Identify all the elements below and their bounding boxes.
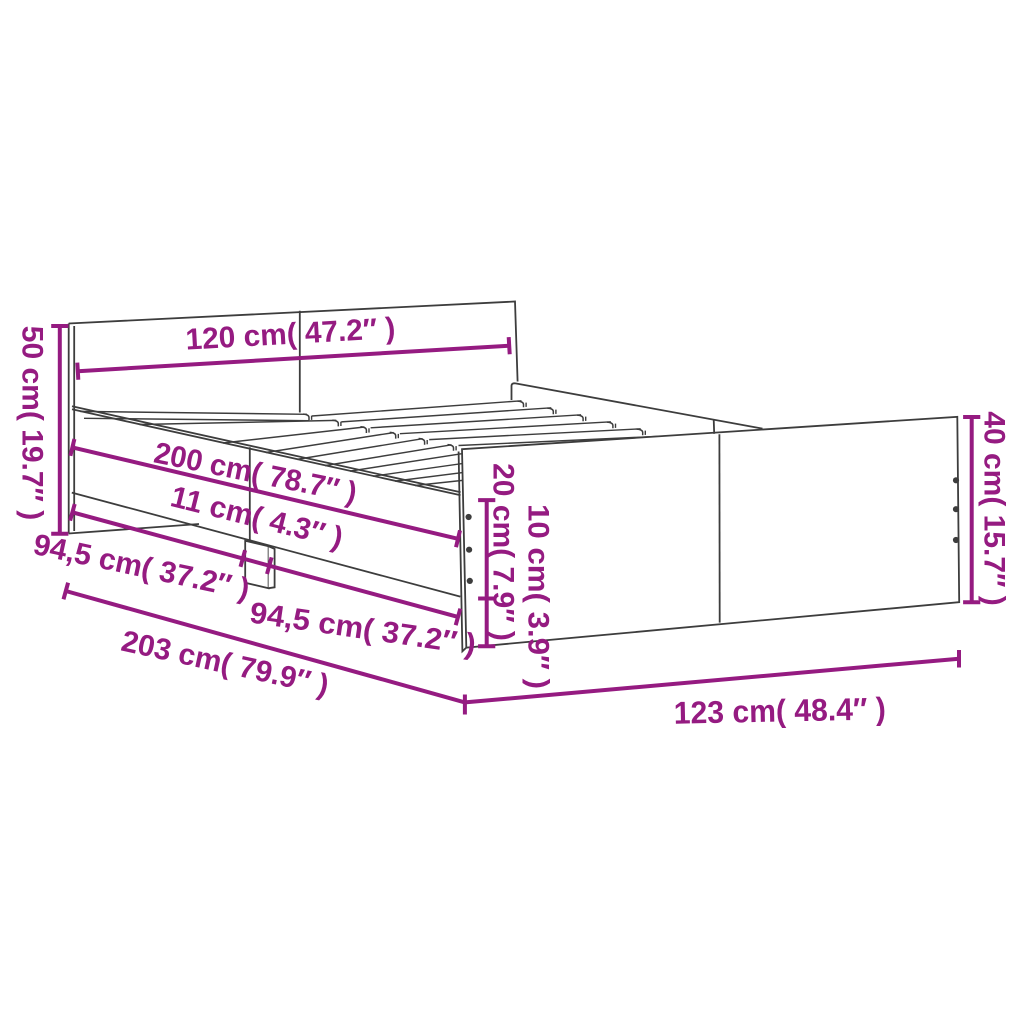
svg-text:40 cm( 15.7″ ): 40 cm( 15.7″ ) [978,411,1011,605]
svg-text:123 cm( 48.4″ ): 123 cm( 48.4″ ) [673,690,886,730]
svg-text:50 cm( 19.7″ ): 50 cm( 19.7″ ) [15,326,48,520]
svg-text:10 cm( 3.9″ ): 10 cm( 3.9″ ) [521,504,554,689]
svg-text:20 cm( 7.9″ ): 20 cm( 7.9″ ) [486,463,519,641]
